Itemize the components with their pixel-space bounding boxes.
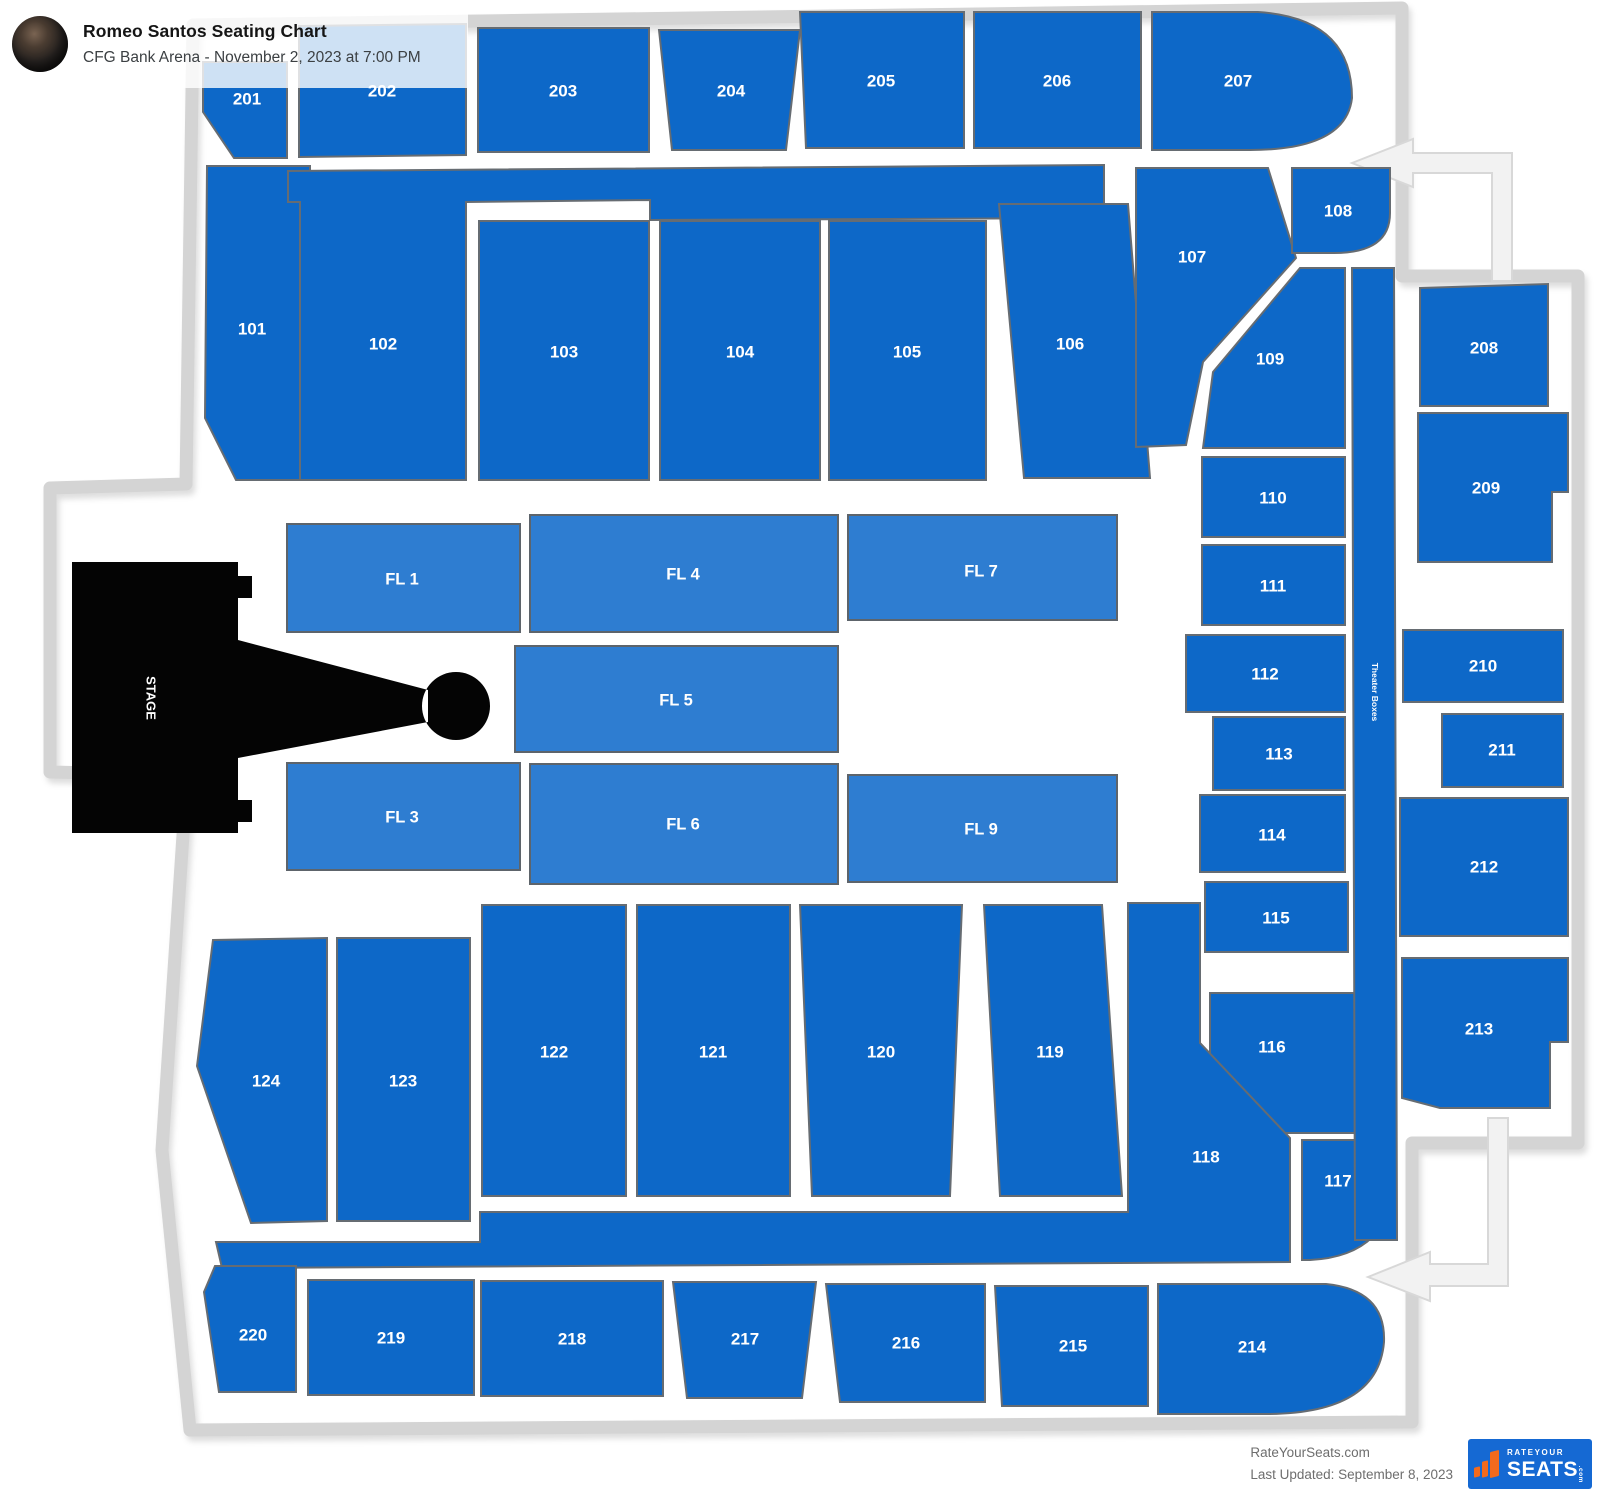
section-203[interactable]	[478, 28, 649, 152]
section-101[interactable]	[205, 166, 310, 480]
section-119[interactable]	[984, 905, 1122, 1196]
section-219[interactable]	[308, 1280, 474, 1395]
rateyourseats-logo[interactable]: RATEYOURSEATS .com	[1468, 1439, 1592, 1489]
section-115[interactable]	[1205, 882, 1348, 952]
section-213[interactable]	[1402, 958, 1568, 1108]
theater-boxes[interactable]	[1352, 268, 1397, 1240]
chart-subtitle: CFG Bank Arena - November 2, 2023 at 7:0…	[83, 49, 421, 67]
section-208[interactable]	[1420, 284, 1548, 406]
section-112[interactable]	[1186, 635, 1345, 712]
section-205[interactable]	[800, 12, 964, 148]
section-209[interactable]	[1418, 413, 1568, 562]
section-207[interactable]	[1152, 12, 1352, 150]
logo-text-suffix: .com	[1576, 1466, 1583, 1483]
section-fl-9[interactable]	[848, 775, 1117, 882]
section-124[interactable]	[197, 938, 327, 1223]
chart-header: Romeo Santos Seating Chart CFG Bank Aren…	[0, 0, 468, 88]
section-fl-5[interactable]	[515, 646, 838, 752]
section-122[interactable]	[482, 905, 626, 1196]
section-204[interactable]	[659, 30, 800, 150]
section-216[interactable]	[826, 1284, 985, 1402]
chart-title: Romeo Santos Seating Chart	[83, 21, 421, 42]
section-113[interactable]	[1213, 717, 1345, 790]
section-218[interactable]	[481, 1281, 663, 1396]
section-fl-6[interactable]	[530, 764, 838, 884]
footer: RateYourSeats.com Last Updated: Septembe…	[1250, 1439, 1592, 1489]
artist-avatar	[12, 16, 68, 72]
section-111[interactable]	[1202, 545, 1345, 625]
seating-chart-map: 2012022032042052062071011021031041051061…	[0, 0, 1600, 1498]
footer-updated: Last Updated: September 8, 2023	[1250, 1464, 1453, 1486]
section-fl-1[interactable]	[287, 524, 520, 632]
section-114[interactable]	[1200, 795, 1345, 872]
section-211[interactable]	[1442, 714, 1563, 787]
section-110[interactable]	[1202, 457, 1345, 537]
section-212[interactable]	[1400, 798, 1568, 936]
section-220[interactable]	[204, 1266, 296, 1392]
footer-site: RateYourSeats.com	[1250, 1442, 1453, 1464]
section-106[interactable]	[999, 204, 1150, 478]
section-215[interactable]	[995, 1286, 1148, 1406]
section-104[interactable]	[660, 221, 820, 480]
section-214[interactable]	[1158, 1284, 1384, 1414]
section-206[interactable]	[974, 12, 1141, 148]
section-120[interactable]	[800, 905, 962, 1196]
section-217[interactable]	[673, 1282, 816, 1398]
section-121[interactable]	[637, 905, 790, 1196]
section-fl-3[interactable]	[287, 763, 520, 870]
rateyourseats-logo-icon	[1474, 1451, 1499, 1477]
logo-text-top: RATEYOUR	[1507, 1449, 1578, 1457]
logo-text-main: SEATS	[1507, 1459, 1578, 1480]
section-fl-7[interactable]	[848, 515, 1117, 620]
section-fl-4[interactable]	[530, 515, 838, 632]
section-108[interactable]	[1292, 168, 1390, 253]
section-105[interactable]	[829, 221, 986, 480]
section-103[interactable]	[479, 221, 649, 480]
section-123[interactable]	[337, 938, 470, 1221]
section-210[interactable]	[1403, 630, 1563, 702]
